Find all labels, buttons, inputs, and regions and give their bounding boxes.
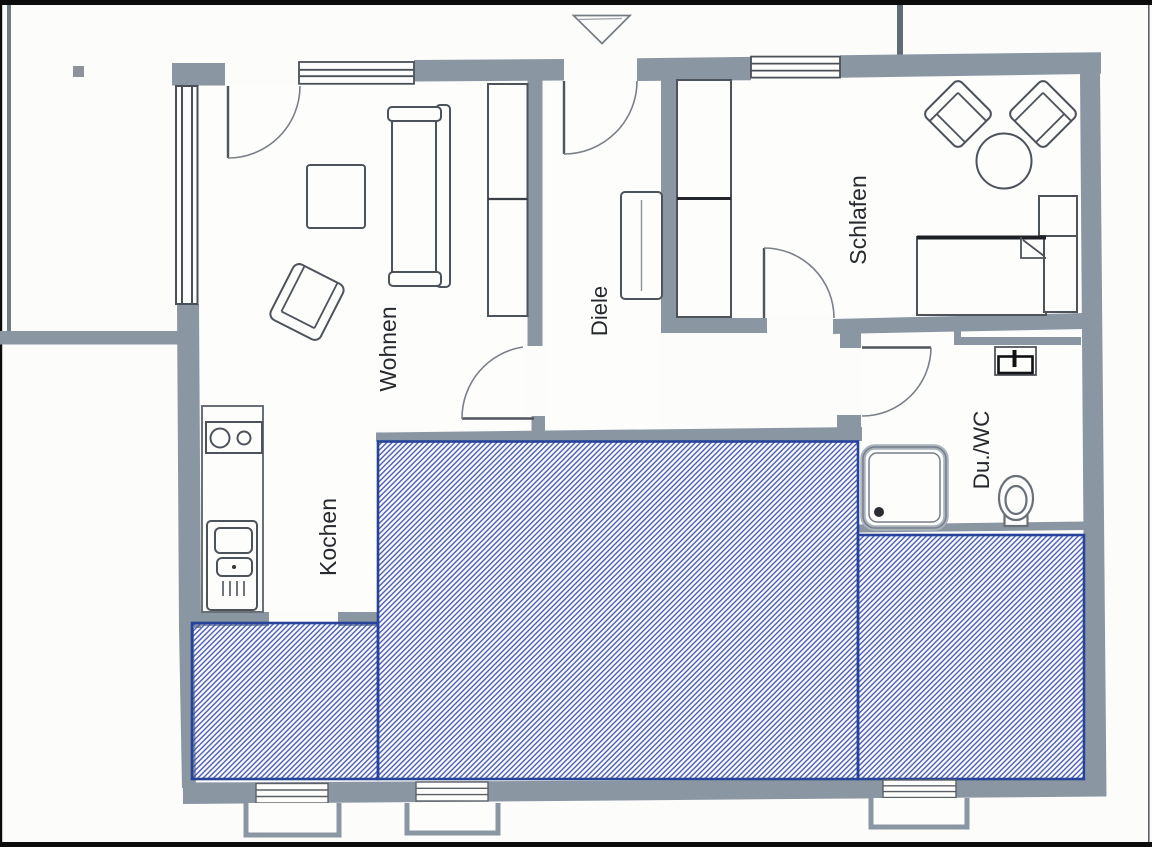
- svg-text:Kochen: Kochen: [315, 498, 341, 576]
- svg-text:Schlafen: Schlafen: [845, 175, 871, 265]
- svg-text:Diele: Diele: [587, 286, 612, 336]
- svg-text:Du./WC: Du./WC: [969, 411, 994, 490]
- svg-text:Wohnen: Wohnen: [375, 306, 401, 391]
